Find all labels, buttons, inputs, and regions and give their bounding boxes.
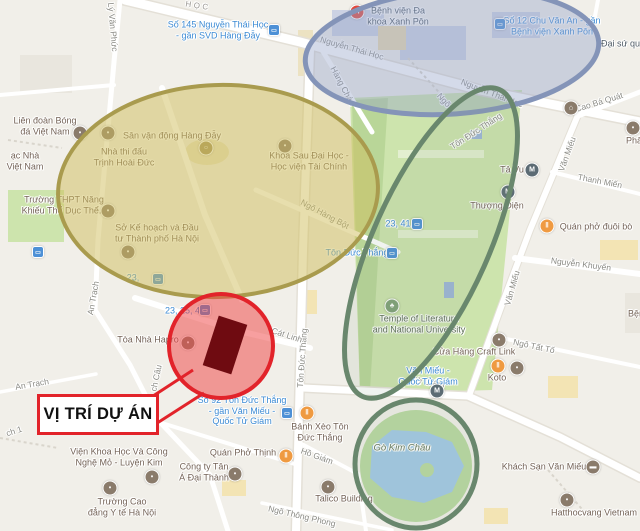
map-canvas[interactable]: Lý Văn PhứcHỌCNguyễn Thái HọcNguyễn Thái… bbox=[0, 0, 640, 531]
project-location-label: VỊ TRÍ DỰ ÁN bbox=[44, 405, 153, 424]
project-location-callout: VỊ TRÍ DỰ ÁN bbox=[37, 394, 159, 435]
highlight-ellipse-stadium-olive bbox=[54, 79, 381, 302]
annotation-overlay bbox=[0, 0, 640, 531]
highlight-ellipse-lake-green bbox=[355, 400, 477, 528]
